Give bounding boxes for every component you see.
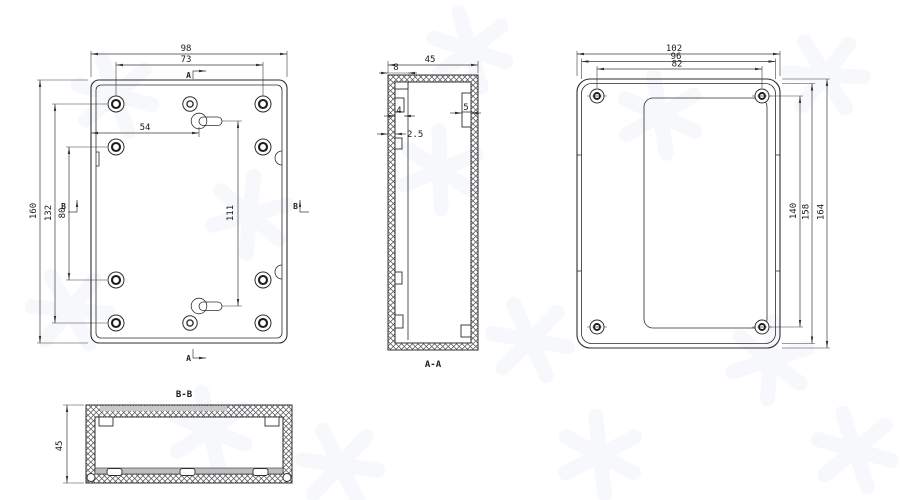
cad-drawing-sheet: 98 73 A 54 111 160 [0,0,900,500]
corner-screw-bore [283,474,291,482]
dim-back-height-text: 164 [817,204,827,220]
dim-front-height-text: 160 [29,203,39,219]
rib-boss [461,325,471,337]
keyhole-slot-stem [199,117,222,126]
screw-hole-icon [587,89,607,103]
keyhole-slot-bottom [191,298,222,314]
dim-front-width-text: 98 [181,44,192,54]
lid-section-fill [100,406,227,411]
front-side-notch-right-top [275,151,282,165]
dim-aa-flange: 8 [379,63,417,73]
corner-screw-bore [87,474,95,482]
dim-keyhole-offset: 54 [91,123,199,137]
section-bb-label: B-B [176,390,193,400]
keyhole-slot-top [191,113,222,129]
dim-bb-depth: 45 [55,405,84,483]
section-aa-view: 45 8 4 5 2.5 A-A [377,55,481,370]
rib-boss [265,417,279,426]
flange-seat [395,82,408,89]
screw-hole-icon [255,96,271,112]
section-marker-a-top-text: A [186,71,191,80]
section-bb-view: B-B 45 [55,390,292,483]
section-marker-a-bottom: A [186,349,206,363]
dim-aa-wall-text: 2.5 [407,130,423,140]
rib-boss [395,315,403,328]
section-aa-label: A-A [425,360,442,370]
dim-aa-rib-right-text: 5 [463,103,468,113]
mount-boss [107,469,122,476]
section-marker-a-top: A [186,71,206,80]
dim-back-hole-pitch-text: 140 [789,203,799,219]
back-view: 102 96 82 140 158 164 [577,44,830,348]
pilot-hole-icon [183,97,197,111]
dim-front-hole-gap: 80 [58,147,107,280]
dim-front-hole-span-text: 73 [181,55,192,65]
keyhole-slot-stem [199,302,222,311]
dim-bb-depth-text: 45 [55,441,65,452]
section-marker-b-right: B [293,200,309,212]
screw-hole-icon [108,139,124,155]
dim-aa-flange-text: 8 [393,63,398,73]
screw-hole-icon [108,272,124,288]
front-side-notch-left [96,152,99,166]
dim-aa-rib-left-text: 4 [396,106,401,116]
screw-hole-icon [587,320,607,334]
section-marker-a-bottom-text: A [186,354,191,363]
rib-boss [395,272,402,284]
dim-keyhole-pitch-text: 111 [226,205,236,221]
pilot-hole-icon [183,316,197,330]
dim-back-hole-pitch: 140 [770,96,803,327]
screw-hole-icon [255,272,271,288]
mount-boss [253,469,268,476]
screw-hole-icon [108,96,124,112]
rib-boss [99,417,113,426]
screw-hole-icon [108,315,124,331]
screw-hole-icon [752,89,772,103]
dim-back-inner-height-text: 158 [802,204,812,220]
rib-boss [395,138,402,149]
section-marker-b-right-text: B [293,202,298,211]
front-side-notch-right-bottom [275,265,282,279]
screw-hole-icon [255,315,271,331]
section-marker-b-left-text: B [61,202,66,211]
enclosure-drawing: 98 73 A 54 111 160 [0,0,900,500]
dim-front-hole-pitch-text: 132 [44,205,54,221]
screw-hole-icon [255,139,271,155]
dim-back-hole-span-text: 82 [672,60,683,70]
dim-keyhole-offset-text: 54 [140,123,151,133]
mount-boss [180,469,195,476]
dim-aa-depth-text: 45 [425,55,436,65]
